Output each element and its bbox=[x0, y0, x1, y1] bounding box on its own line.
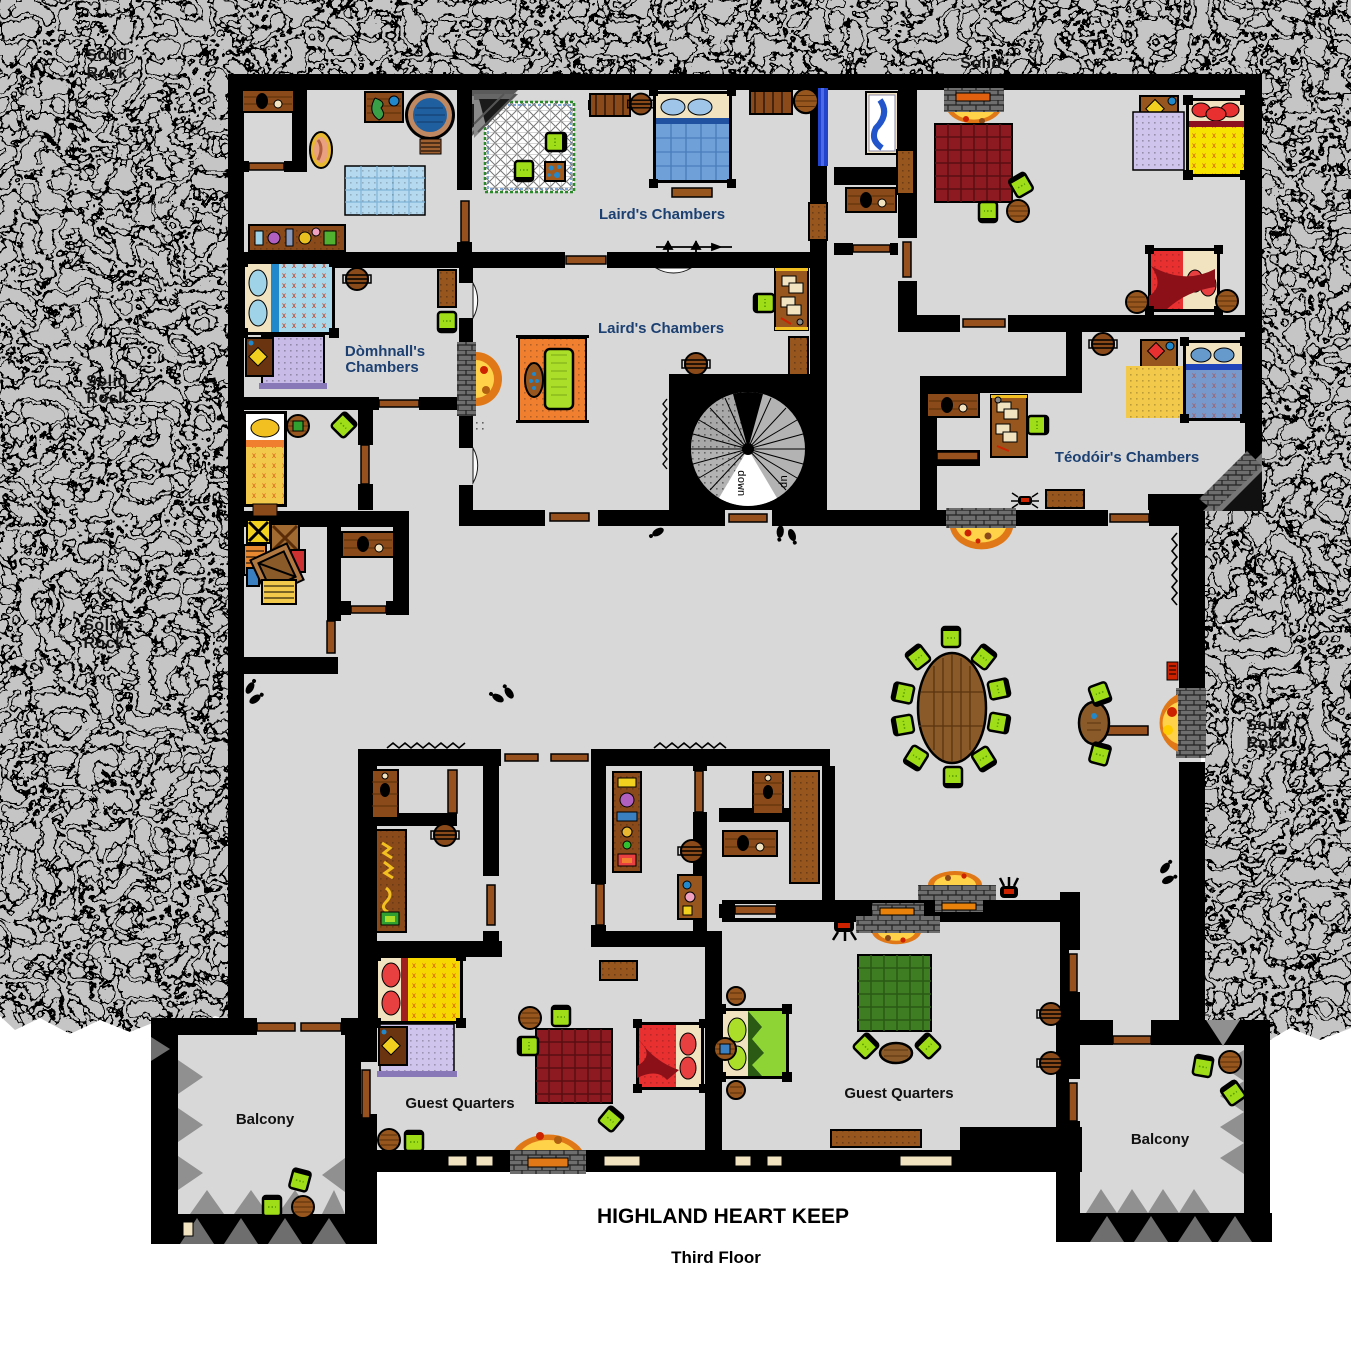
svg-text:Laird's Chambers: Laird's Chambers bbox=[598, 320, 724, 337]
svg-text:Rock: Rock bbox=[1246, 735, 1287, 752]
svg-text:Third Floor: Third Floor bbox=[671, 1248, 761, 1267]
svg-text:Solid: Solid bbox=[83, 617, 125, 634]
svg-text:Rock: Rock bbox=[86, 390, 127, 407]
svg-text:Guest Quarters: Guest Quarters bbox=[844, 1085, 953, 1102]
svg-text:Téodóir's Chambers: Téodóir's Chambers bbox=[1055, 449, 1199, 466]
svg-text:Chambers: Chambers bbox=[345, 359, 418, 376]
svg-text:Solid: Solid bbox=[1246, 717, 1288, 734]
svg-text:down: down bbox=[734, 470, 746, 496]
svg-text:Laird's Chambers: Laird's Chambers bbox=[599, 206, 725, 223]
svg-text:Rock: Rock bbox=[86, 65, 127, 82]
svg-text:HIGHLAND HEART KEEP: HIGHLAND HEART KEEP bbox=[597, 1205, 849, 1228]
svg-text:Balcony: Balcony bbox=[236, 1111, 295, 1128]
svg-text:Solid: Solid bbox=[960, 55, 1002, 72]
svg-text:up: up bbox=[777, 475, 789, 488]
svg-text:Solid: Solid bbox=[86, 47, 128, 64]
svg-text:Balcony: Balcony bbox=[1131, 1131, 1190, 1148]
svg-text:Dòmhnall's: Dòmhnall's bbox=[345, 343, 425, 360]
svg-text:Solid: Solid bbox=[86, 373, 128, 390]
svg-text:Rock: Rock bbox=[83, 635, 124, 652]
svg-text:Guest Quarters: Guest Quarters bbox=[405, 1095, 514, 1112]
